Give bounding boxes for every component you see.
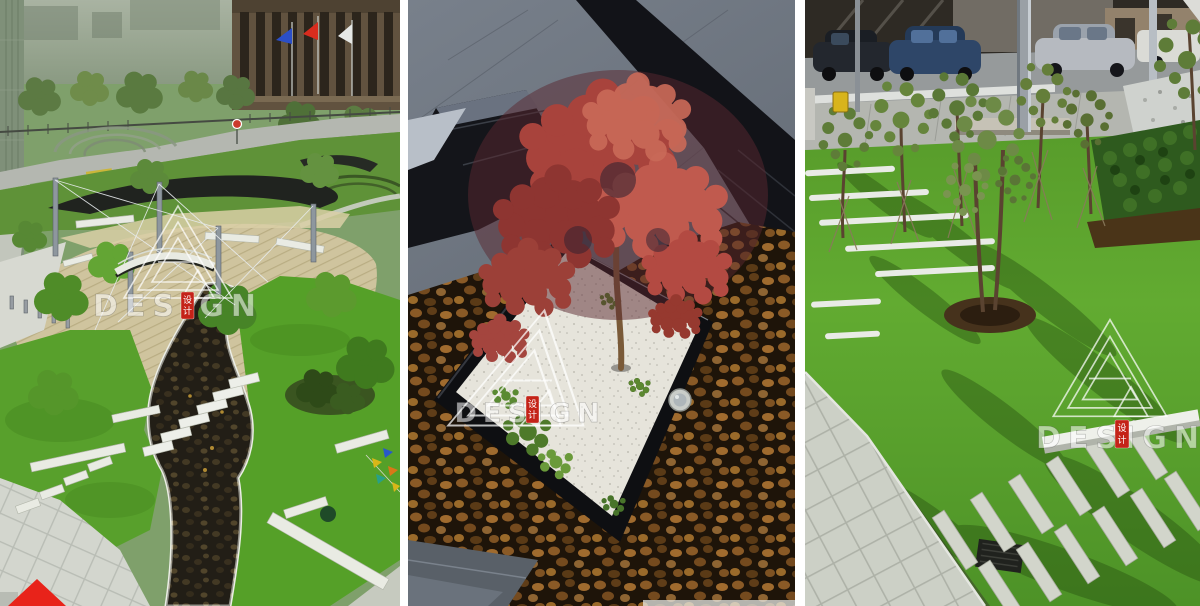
- panel-lawn-paver-garden: DESIGN 设 计: [805, 0, 1200, 606]
- boxwood-hedge: [1087, 120, 1200, 248]
- svg-text:设: 设: [1117, 423, 1126, 434]
- bottom-photo-edge: [643, 600, 795, 606]
- red-seal-stamp: 设 计: [526, 396, 539, 423]
- svg-text:设: 设: [528, 399, 537, 410]
- svg-text:计: 计: [1117, 434, 1126, 446]
- brick-office-building: [232, 0, 400, 110]
- green-bucket: [320, 506, 336, 522]
- svg-text:计: 计: [528, 409, 537, 421]
- panel-red-maple-planter: DESIGN 设 计: [408, 0, 795, 606]
- planter-light-fixture: [669, 389, 691, 411]
- yellow-sign: [833, 92, 848, 112]
- svg-text:设: 设: [183, 295, 192, 306]
- triptych-canvas: DESIGN 设 计: [0, 0, 1200, 606]
- design-watermark-text: DESIGN: [93, 289, 263, 324]
- red-seal-stamp: 设 计: [1115, 420, 1129, 448]
- red-seal-stamp: 设 计: [181, 292, 194, 319]
- panel-aerial-park: DESIGN 设 计: [0, 0, 400, 606]
- svg-text:计: 计: [183, 305, 192, 317]
